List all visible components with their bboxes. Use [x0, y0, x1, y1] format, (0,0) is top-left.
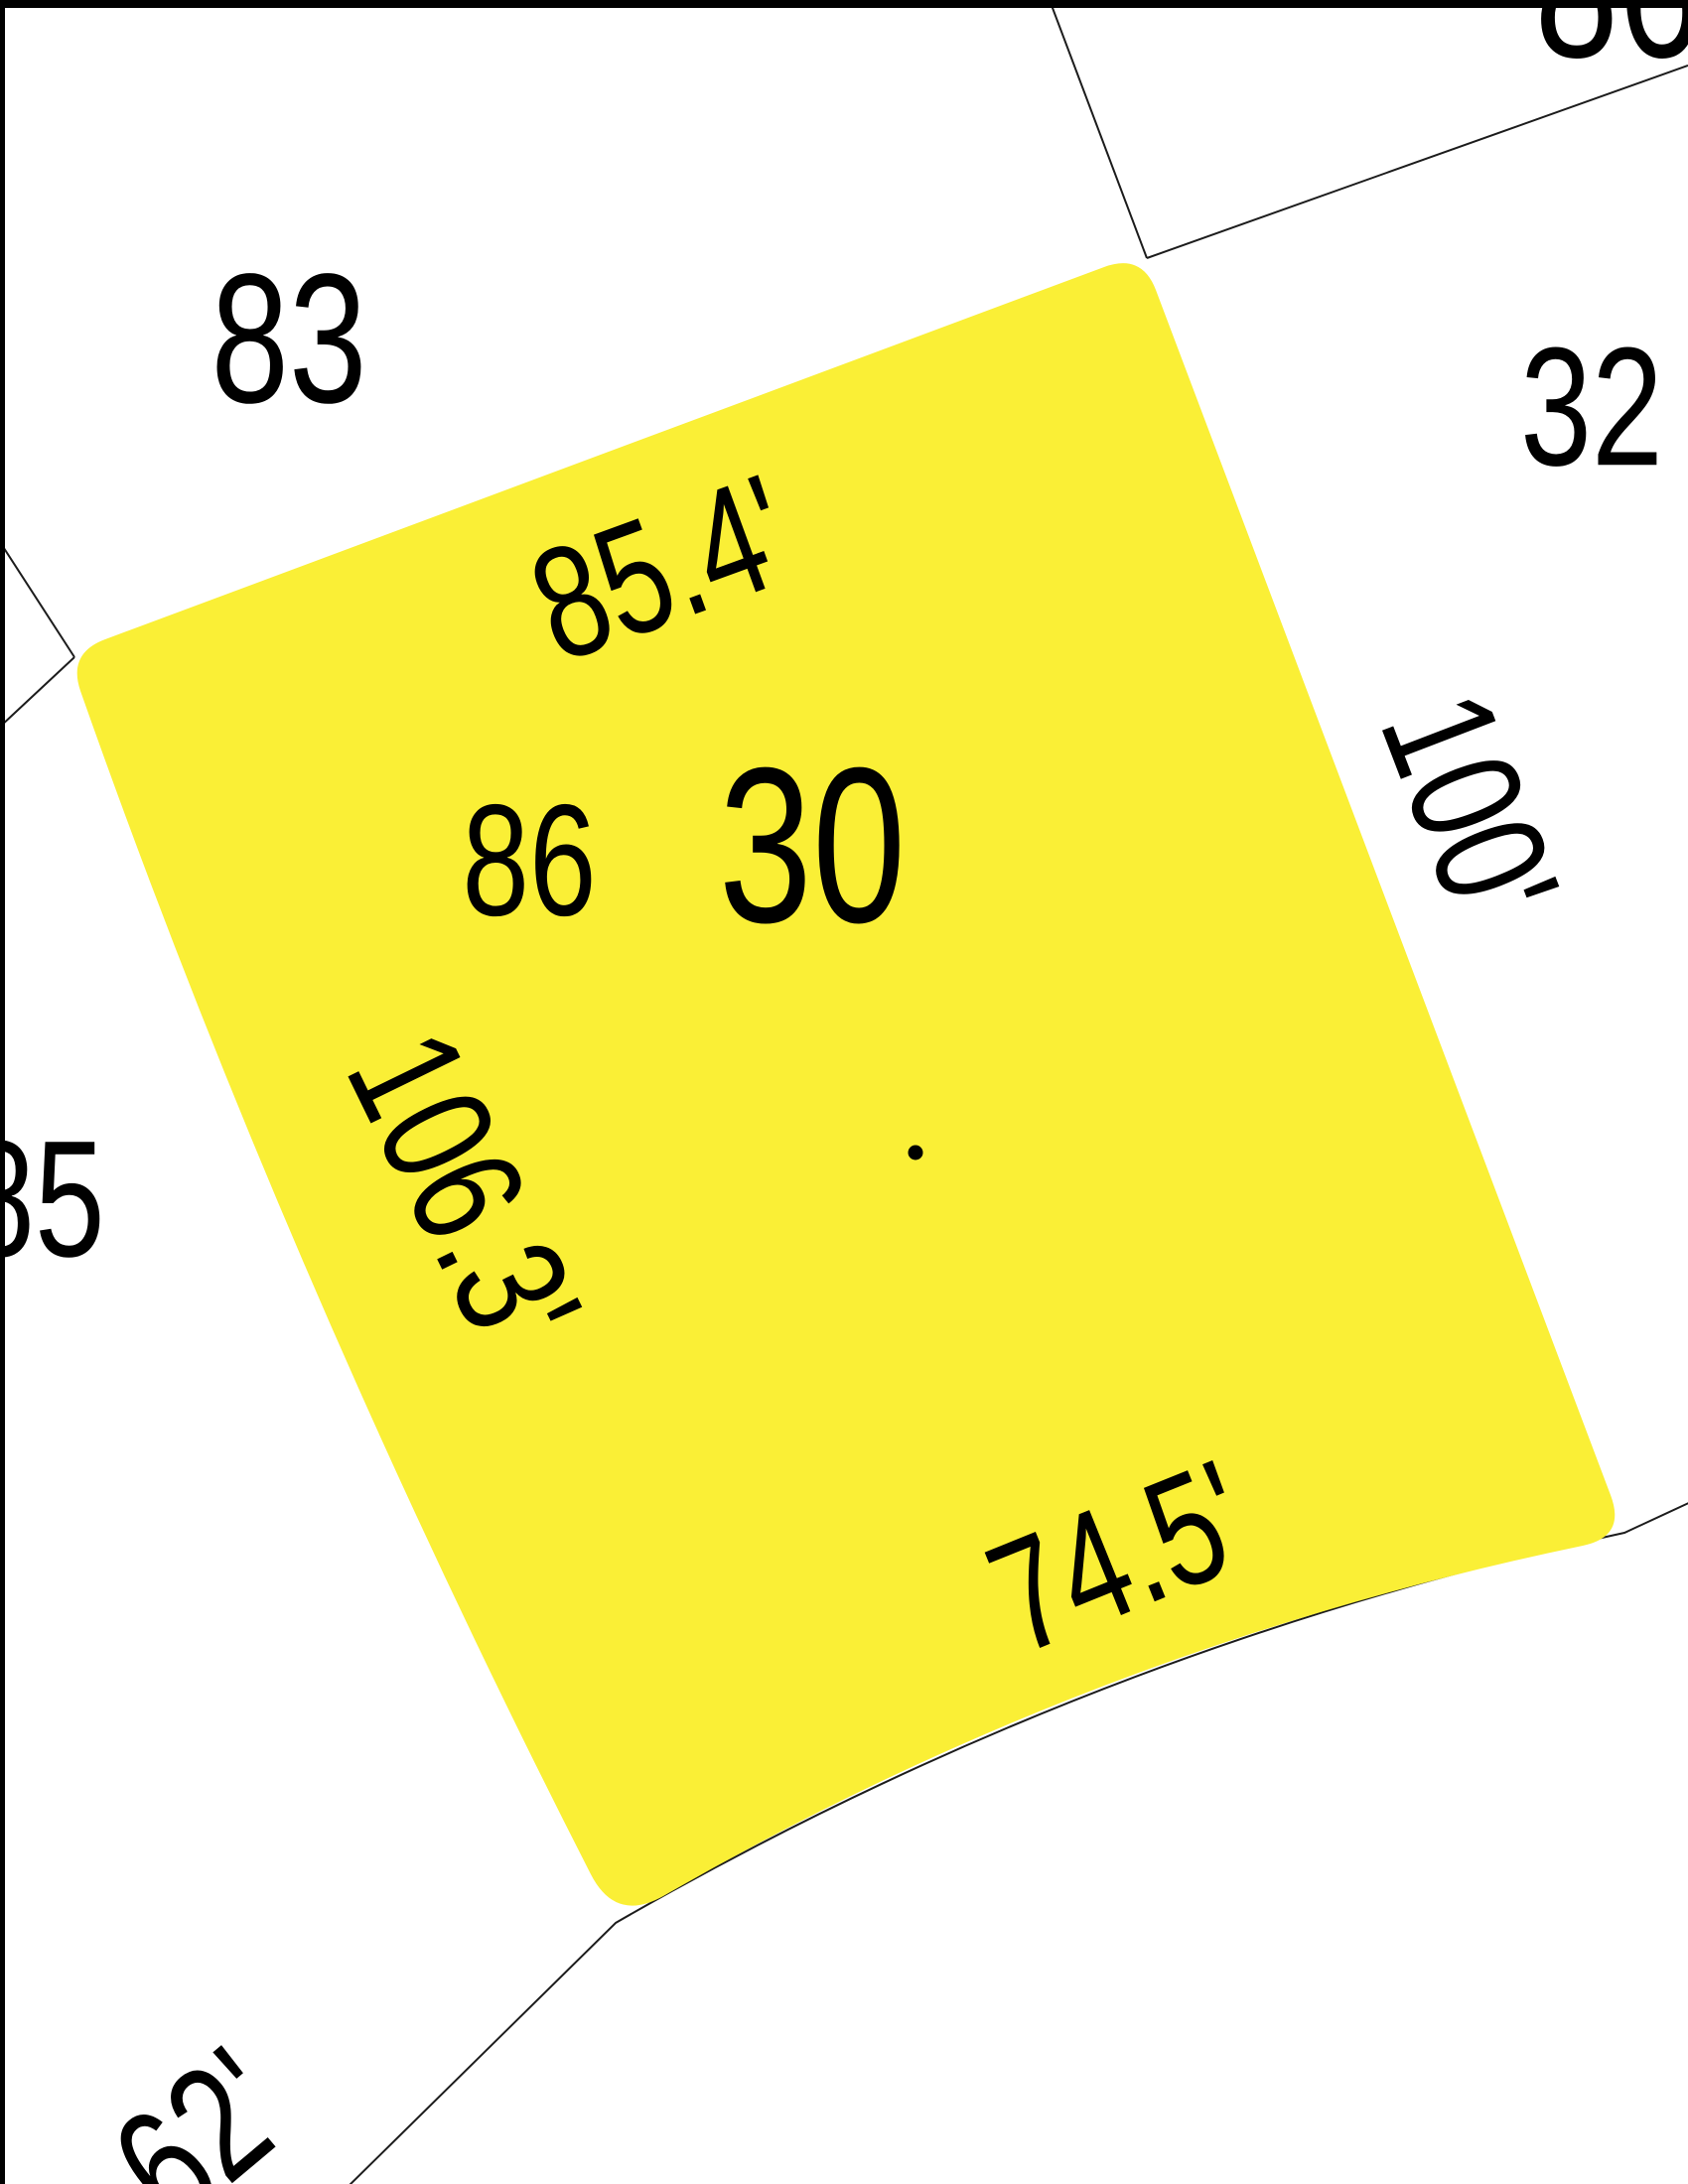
neighbor-parcel-label-85: 85	[0, 1107, 105, 1292]
neighbor-parcel-label-86-top: 86	[1534, 0, 1688, 99]
map-canvas[interactable]: 30 86 85.4' 100' 106.3' 74.5' 83 32 85 8…	[0, 0, 1688, 2184]
neighbor-parcel-label-83: 83	[211, 235, 366, 442]
neighbor-parcel-label-32: 32	[1520, 312, 1663, 500]
map-frame-top	[0, 0, 1688, 8]
house-number-label: 86	[462, 771, 596, 949]
map-frame-left	[0, 0, 5, 2184]
parcel-centroid-dot	[909, 1146, 923, 1160]
lot-number-label: 30	[719, 722, 907, 969]
